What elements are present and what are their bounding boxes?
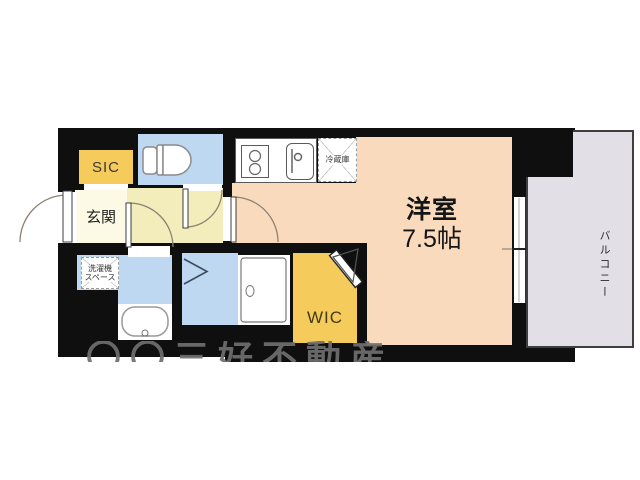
main-room-size: 7.5帖 xyxy=(372,225,492,254)
balcony-window xyxy=(512,197,526,303)
walk-in-closet-label-wrap: WIC xyxy=(293,300,357,336)
kitchen-sink-icon xyxy=(286,143,314,180)
washroom-area xyxy=(182,253,238,325)
laundry-space-label: 洗濯機 スペース xyxy=(82,264,117,282)
entrance-area: 玄関 xyxy=(75,190,127,243)
toilet-room xyxy=(138,134,223,185)
watermark: 〇〇三好不動産 xyxy=(86,341,518,362)
entrance-doorway xyxy=(58,192,77,243)
stove-icon xyxy=(241,145,269,178)
main-room-floor-upper xyxy=(356,137,512,187)
washroom-doorway xyxy=(128,246,170,257)
main-room-name: 洋室 xyxy=(372,196,492,225)
balcony-label: バルコニー xyxy=(592,210,616,320)
shoe-closet: SIC xyxy=(79,150,133,184)
bathtub-alcove xyxy=(118,304,172,340)
laundry-space-box: 洗濯機 スペース xyxy=(81,257,119,289)
main-room-label: 洋室 7.5帖 xyxy=(372,196,492,254)
toilet-doorway xyxy=(183,184,222,191)
entrance-label: 玄関 xyxy=(86,206,116,227)
shoe-closet-label: SIC xyxy=(92,159,120,176)
floor-plan: バルコニー 冷蔵庫 SIC 玄関 洗濯機 スペース WIC xyxy=(0,0,640,480)
washroom-vanity-area xyxy=(238,255,290,325)
walk-in-closet-label: WIC xyxy=(307,308,343,328)
refrigerator-box: 冷蔵庫 xyxy=(318,138,357,182)
refrigerator-label: 冷蔵庫 xyxy=(325,155,351,164)
corridor-area xyxy=(127,188,223,243)
main-room-doorway xyxy=(223,197,233,241)
wall-right-upper xyxy=(512,128,526,198)
